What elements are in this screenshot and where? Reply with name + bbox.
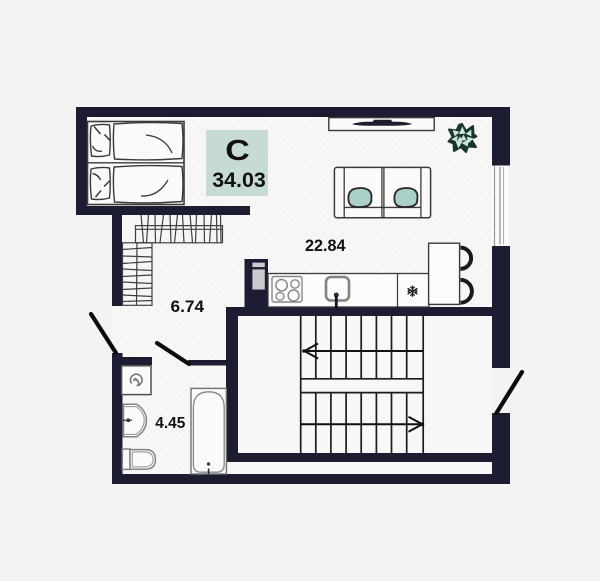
svg-text:22.84: 22.84 [305,236,346,255]
svg-text:4.45: 4.45 [155,415,185,432]
svg-text:C: C [225,135,250,167]
svg-text:6.74: 6.74 [171,297,205,316]
svg-text:34.03: 34.03 [212,168,266,192]
